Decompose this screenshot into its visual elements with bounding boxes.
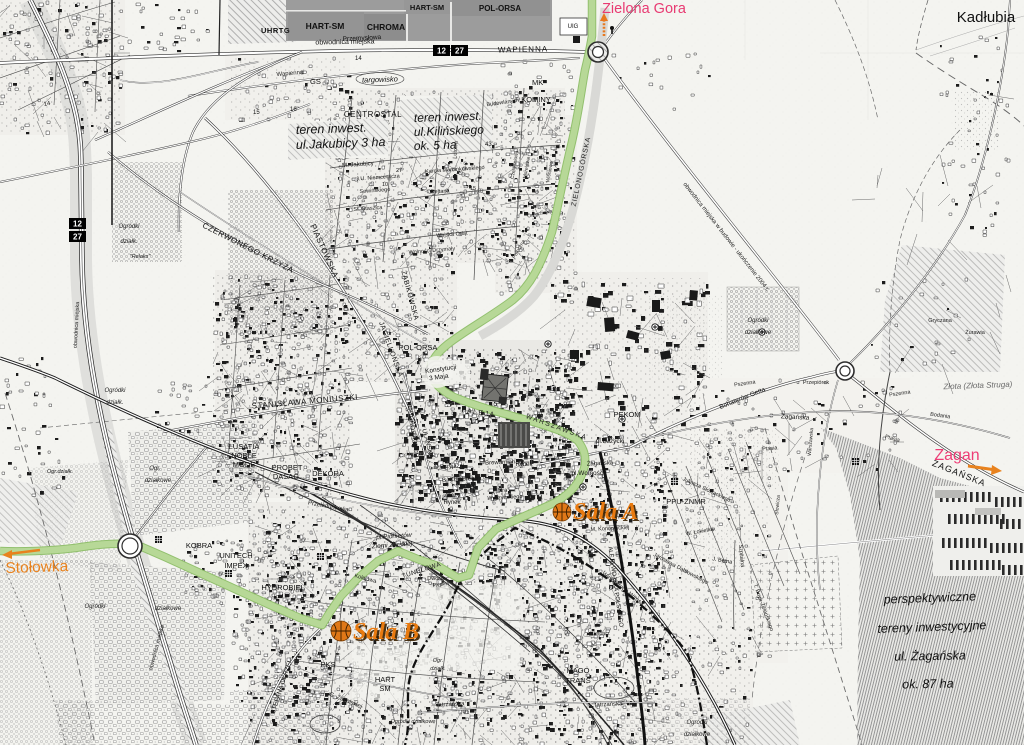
svg-text:Zielona Gora: Zielona Gora bbox=[602, 1, 687, 17]
svg-text:PKS: PKS bbox=[320, 660, 335, 669]
svg-text:HART-SM: HART-SM bbox=[410, 3, 444, 12]
svg-text:Browarniana: Browarniana bbox=[485, 459, 520, 466]
svg-text:T.Rejtana: T.Rejtana bbox=[426, 188, 450, 195]
svg-text:Ogr.: Ogr. bbox=[149, 466, 160, 472]
svg-text:NOBLE: NOBLE bbox=[231, 451, 256, 460]
svg-text:16: 16 bbox=[290, 107, 297, 113]
svg-text:LUSATIA: LUSATIA bbox=[229, 442, 260, 451]
svg-text:Ogródki: Ogródki bbox=[747, 318, 769, 324]
svg-text:PPU-ZNMR: PPU-ZNMR bbox=[666, 497, 706, 506]
svg-text:obwodnica miejska: obwodnica miejska bbox=[315, 38, 374, 46]
svg-text:UNITECH: UNITECH bbox=[219, 551, 252, 560]
svg-text:MK: MK bbox=[532, 78, 543, 87]
svg-text:KOBRA: KOBRA bbox=[186, 541, 212, 550]
svg-text:działkowe: działkowe bbox=[745, 330, 772, 336]
svg-text:SM: SM bbox=[379, 684, 390, 693]
svg-text:"Relaks": "Relaks" bbox=[130, 254, 152, 260]
svg-text:teren inwest.: teren inwest. bbox=[296, 121, 367, 137]
svg-text:CHROMA: CHROMA bbox=[367, 22, 405, 32]
svg-text:HART-SM: HART-SM bbox=[306, 21, 345, 31]
svg-text:14: 14 bbox=[355, 56, 362, 62]
svg-text:POL-ORSA: POL-ORSA bbox=[399, 343, 438, 352]
svg-text:UHRTG: UHRTG bbox=[261, 26, 290, 35]
svg-text:Ogródki: Ogródki bbox=[118, 224, 140, 230]
svg-text:Zagan: Zagan bbox=[934, 447, 979, 464]
svg-text:Ogr.działk.: Ogr.działk. bbox=[47, 469, 73, 475]
svg-text:Żurawia: Żurawia bbox=[965, 329, 986, 336]
svg-text:Rynek: Rynek bbox=[443, 500, 461, 506]
svg-text:działkowe: działkowe bbox=[684, 732, 711, 738]
svg-text:Rynek: Rynek bbox=[515, 462, 533, 468]
svg-text:Ogr.: Ogr. bbox=[433, 658, 444, 664]
svg-text:Dworzec: Dworzec bbox=[427, 576, 449, 582]
svg-text:HART: HART bbox=[375, 675, 396, 684]
svg-text:PKP: PKP bbox=[432, 583, 443, 589]
svg-text:Gryczana: Gryczana bbox=[928, 318, 952, 324]
svg-text:27: 27 bbox=[73, 233, 82, 242]
svg-text:działk.: działk. bbox=[430, 666, 446, 672]
svg-text:Piotra: Piotra bbox=[493, 488, 509, 495]
svg-text:DEKORA: DEKORA bbox=[312, 469, 344, 478]
svg-text:GS: GS bbox=[310, 77, 321, 86]
svg-text:pl.Łużycki: pl.Łużycki bbox=[596, 438, 625, 445]
svg-text:UIG: UIG bbox=[568, 24, 579, 30]
svg-text:15: 15 bbox=[253, 110, 260, 116]
svg-text:ul.Kilińskiego: ul.Kilińskiego bbox=[414, 123, 485, 139]
svg-text:MODE: MODE bbox=[233, 460, 256, 469]
svg-text:POL-ORSA: POL-ORSA bbox=[479, 4, 521, 13]
svg-text:Ogródki: Ogródki bbox=[84, 604, 106, 610]
svg-text:działk.: działk. bbox=[120, 239, 137, 245]
svg-text:12: 12 bbox=[437, 47, 446, 56]
svg-text:HYDROBIEL: HYDROBIEL bbox=[261, 583, 304, 592]
svg-text:IMPEX: IMPEX bbox=[224, 561, 247, 570]
svg-text:MAGO: MAGO bbox=[567, 666, 590, 675]
svg-text:ok. 87 ha: ok. 87 ha bbox=[902, 677, 954, 692]
svg-text:pl.Wolności: pl.Wolności bbox=[571, 470, 604, 477]
svg-text:Przepiórek: Przepiórek bbox=[803, 380, 830, 386]
svg-text:ul. Żagańska: ul. Żagańska bbox=[894, 648, 966, 663]
svg-text:Kadłubia: Kadłubia bbox=[957, 9, 1016, 26]
svg-text:12: 12 bbox=[73, 220, 82, 229]
svg-text:Sala B: Sala B bbox=[353, 619, 419, 645]
svg-text:15: 15 bbox=[470, 186, 476, 192]
svg-text:Żagańska: Żagańska bbox=[587, 459, 614, 467]
svg-text:27: 27 bbox=[455, 47, 464, 56]
svg-text:ok. 5 ha: ok. 5 ha bbox=[414, 138, 457, 153]
svg-text:Ogródki: Ogródki bbox=[686, 720, 708, 726]
svg-text:działkowe: działkowe bbox=[155, 606, 182, 612]
svg-text:Ogródki: Ogródki bbox=[104, 388, 126, 394]
svg-text:43: 43 bbox=[485, 142, 492, 148]
svg-text:27: 27 bbox=[396, 168, 402, 174]
svg-text:PROBET: PROBET bbox=[272, 463, 303, 472]
svg-text:Stołowka: Stołowka bbox=[5, 558, 69, 577]
svg-text:PEKOM: PEKOM bbox=[613, 410, 640, 419]
svg-text:działk.: działk. bbox=[106, 400, 123, 406]
svg-text:działkowe: działkowe bbox=[145, 478, 172, 484]
svg-text:WAPIENNA: WAPIENNA bbox=[498, 45, 549, 55]
svg-text:TRANS: TRANS bbox=[565, 676, 590, 685]
svg-text:targowisko: targowisko bbox=[362, 74, 398, 84]
svg-text:Sala A: Sala A bbox=[573, 499, 638, 525]
svg-text:DASAG.: DASAG. bbox=[273, 472, 301, 481]
svg-text:Kielcarz: Kielcarz bbox=[590, 631, 610, 637]
svg-text:KOMINY: KOMINY bbox=[521, 95, 551, 104]
svg-text:Ogródki działkowe: Ogródki działkowe bbox=[391, 719, 436, 725]
svg-text:Żaczy: Żaczy bbox=[444, 492, 460, 499]
svg-text:10: 10 bbox=[382, 182, 388, 188]
svg-text:CENTROSTAL: CENTROSTAL bbox=[344, 110, 402, 119]
